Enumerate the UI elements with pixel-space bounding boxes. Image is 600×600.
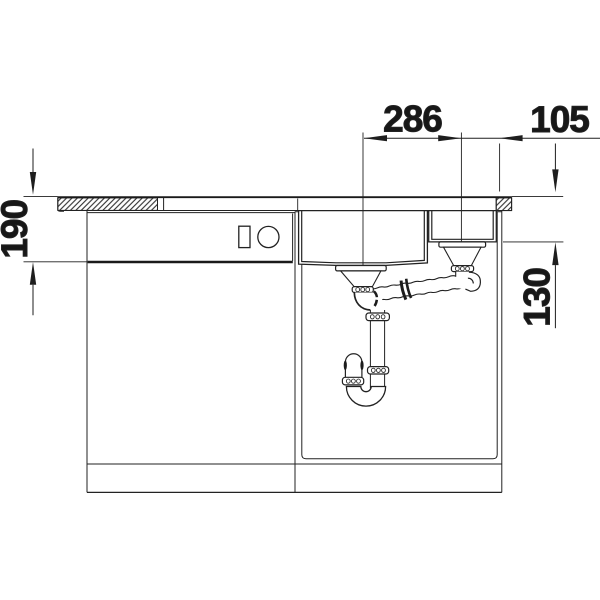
svg-text:190: 190 [0,200,35,259]
svg-text:286: 286 [383,99,442,140]
svg-text:130: 130 [517,268,558,327]
svg-text:105: 105 [530,99,589,140]
